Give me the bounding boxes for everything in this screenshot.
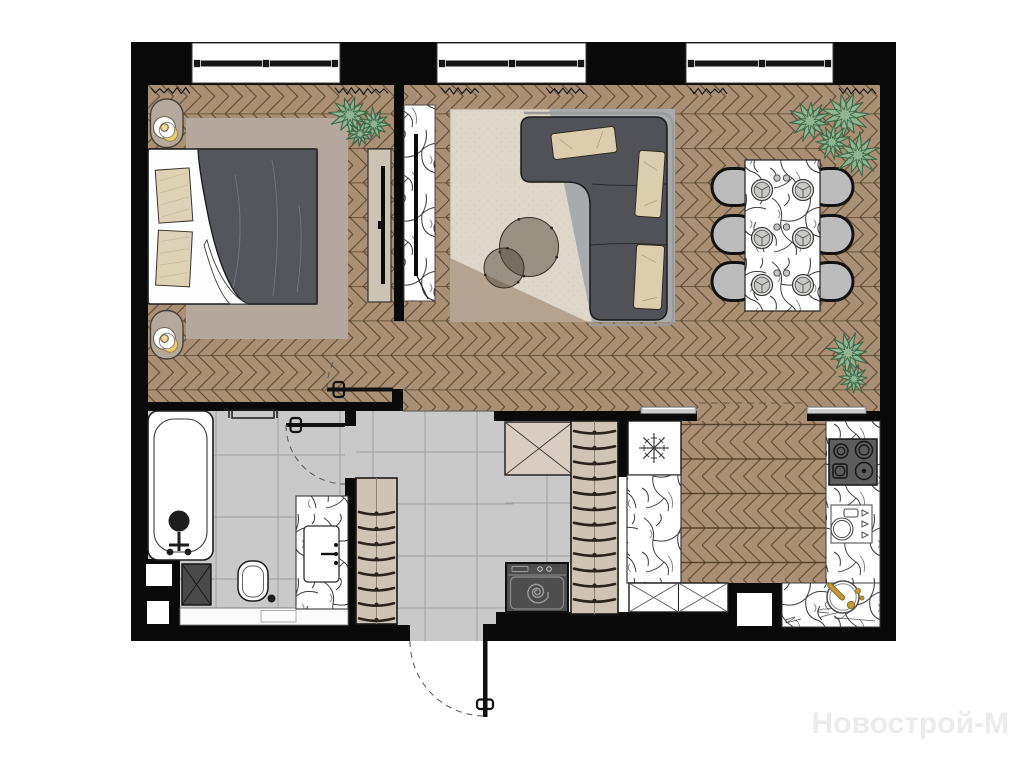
svg-text:Новострой-М: Новострой-М: [812, 707, 1009, 740]
